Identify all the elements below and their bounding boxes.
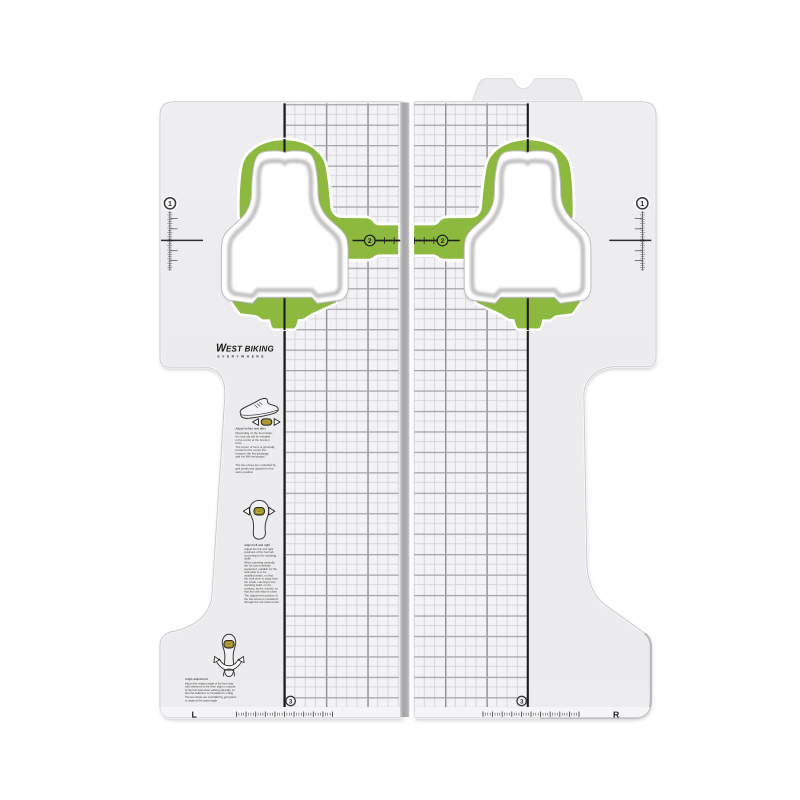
- svg-text:and the fifth metatarsal: and the fifth metatarsal: [236, 455, 265, 459]
- svg-text:1: 1: [640, 199, 644, 208]
- svg-text:2: 2: [441, 238, 445, 245]
- svg-text:that the deflection is consist: that the deflection is consistent for ri…: [185, 692, 233, 695]
- svg-text:Adjust before and after: Adjust before and after: [236, 427, 266, 431]
- svg-text:3: 3: [289, 698, 293, 705]
- svg-text:R: R: [613, 710, 620, 720]
- svg-text:L: L: [192, 710, 197, 720]
- svg-text:EVERYWHERE: EVERYWHERE: [218, 354, 267, 358]
- svg-text:to rotate at the same angle: to rotate at the same angle: [185, 699, 217, 702]
- svg-text:1: 1: [168, 199, 172, 208]
- svg-text:Angle adjustment: Angle adjustment: [185, 677, 208, 681]
- svg-text:2: 2: [368, 238, 372, 245]
- svg-text:through the tab mark center: through the tab mark center: [244, 600, 279, 604]
- svg-text:EST BIKING: EST BIKING: [226, 344, 274, 354]
- svg-text:same position: same position: [236, 470, 254, 474]
- svg-text:3: 3: [520, 698, 524, 705]
